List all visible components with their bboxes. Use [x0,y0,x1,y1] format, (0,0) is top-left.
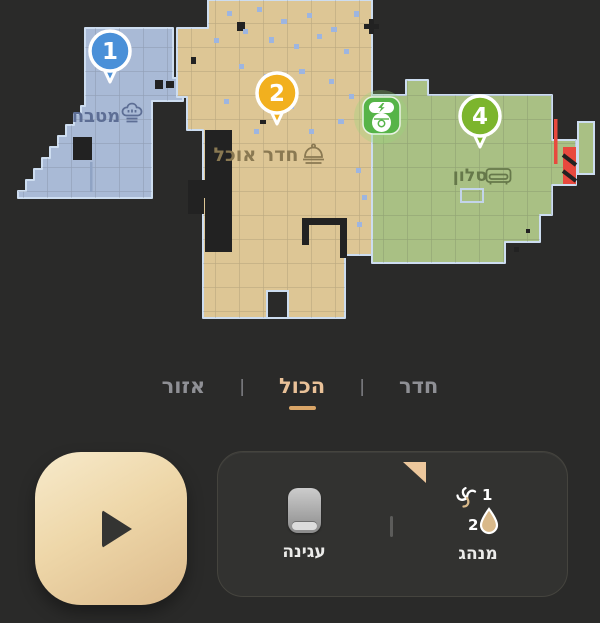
tab-separator: | [359,374,365,397]
floor-map[interactable]: מטבח חדר אוכל סלון [0,0,600,350]
no-go-zone-icon[interactable] [563,147,576,184]
tab-room[interactable]: חדר [399,374,438,398]
dock-button[interactable]: עגינה [259,488,349,562]
tab-zone[interactable]: אזור [162,374,206,398]
robot-dock-icon[interactable] [354,90,408,144]
selected-tab-underline [289,406,316,410]
mode-label: מנהג [458,544,497,564]
mode-icon: 1 2 [454,485,502,535]
tab-separator: | [239,374,245,397]
actions-panel: עגינה 1 2 מנהג [217,451,568,597]
dock-icon [288,488,321,533]
svg-text:חדר אוכל: חדר אוכל [214,144,299,166]
panel-divider [390,516,393,537]
svg-text:4: 4 [472,104,488,130]
svg-text:סלון: סלון [453,166,488,186]
mode-button[interactable]: 1 2 מנהג [433,485,523,564]
water-level: 2 [468,516,478,534]
clean-mode-tabs: חדר | הכול | אזור [0,374,600,410]
svg-text:1: 1 [102,39,118,65]
map-svg: מטבח חדר אוכל סלון [0,0,600,350]
svg-text:2: 2 [269,81,285,107]
mode-pointer-triangle [403,462,426,483]
start-cleaning-button[interactable] [35,452,187,605]
svg-text:מטבח: מטבח [72,106,121,127]
tab-all[interactable]: הכול [279,374,325,410]
play-icon [102,510,132,548]
water-drop-icon [481,509,497,533]
doorway [267,291,288,318]
app-screen: מטבח חדר אוכל סלון [0,0,600,623]
fan-icon [458,488,476,506]
dock-label: עגינה [282,542,325,562]
obstacle [73,137,92,160]
virtual-wall-icon[interactable] [554,119,558,164]
fan-level: 1 [482,486,492,504]
